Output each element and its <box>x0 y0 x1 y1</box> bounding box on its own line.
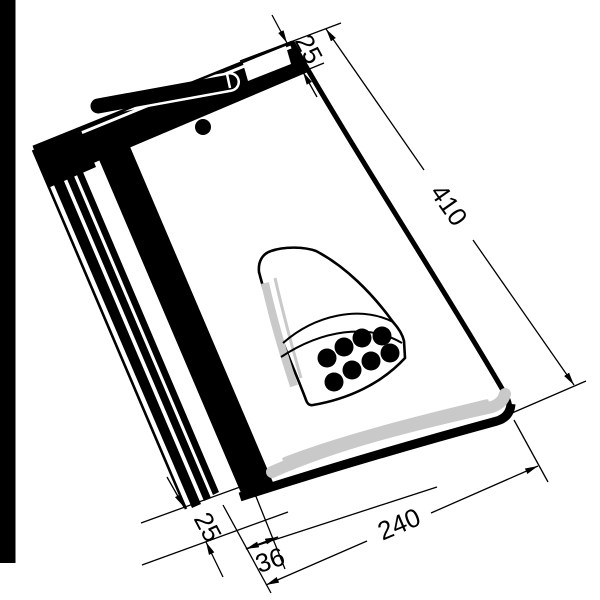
dim-label-width-240: 240 <box>373 502 425 547</box>
vent-hole <box>335 338 354 357</box>
page-edge-bar <box>0 0 16 563</box>
vent-hole <box>318 349 337 368</box>
vent-hole <box>325 373 344 392</box>
vent-hole <box>353 329 372 348</box>
nail-hole <box>195 119 211 135</box>
vent-hole <box>381 344 400 363</box>
vent-hole <box>362 352 381 371</box>
drawing-canvas: 25 410 240 36 25 <box>0 0 600 600</box>
technical-drawing-page: 25 410 240 36 25 <box>0 0 600 600</box>
dim-label-side-inset-36: 36 <box>251 541 288 579</box>
roof-tile <box>33 42 512 600</box>
dim-label-length-410: 410 <box>424 179 473 232</box>
vent-hole <box>343 361 362 380</box>
vent-hole <box>373 327 392 346</box>
